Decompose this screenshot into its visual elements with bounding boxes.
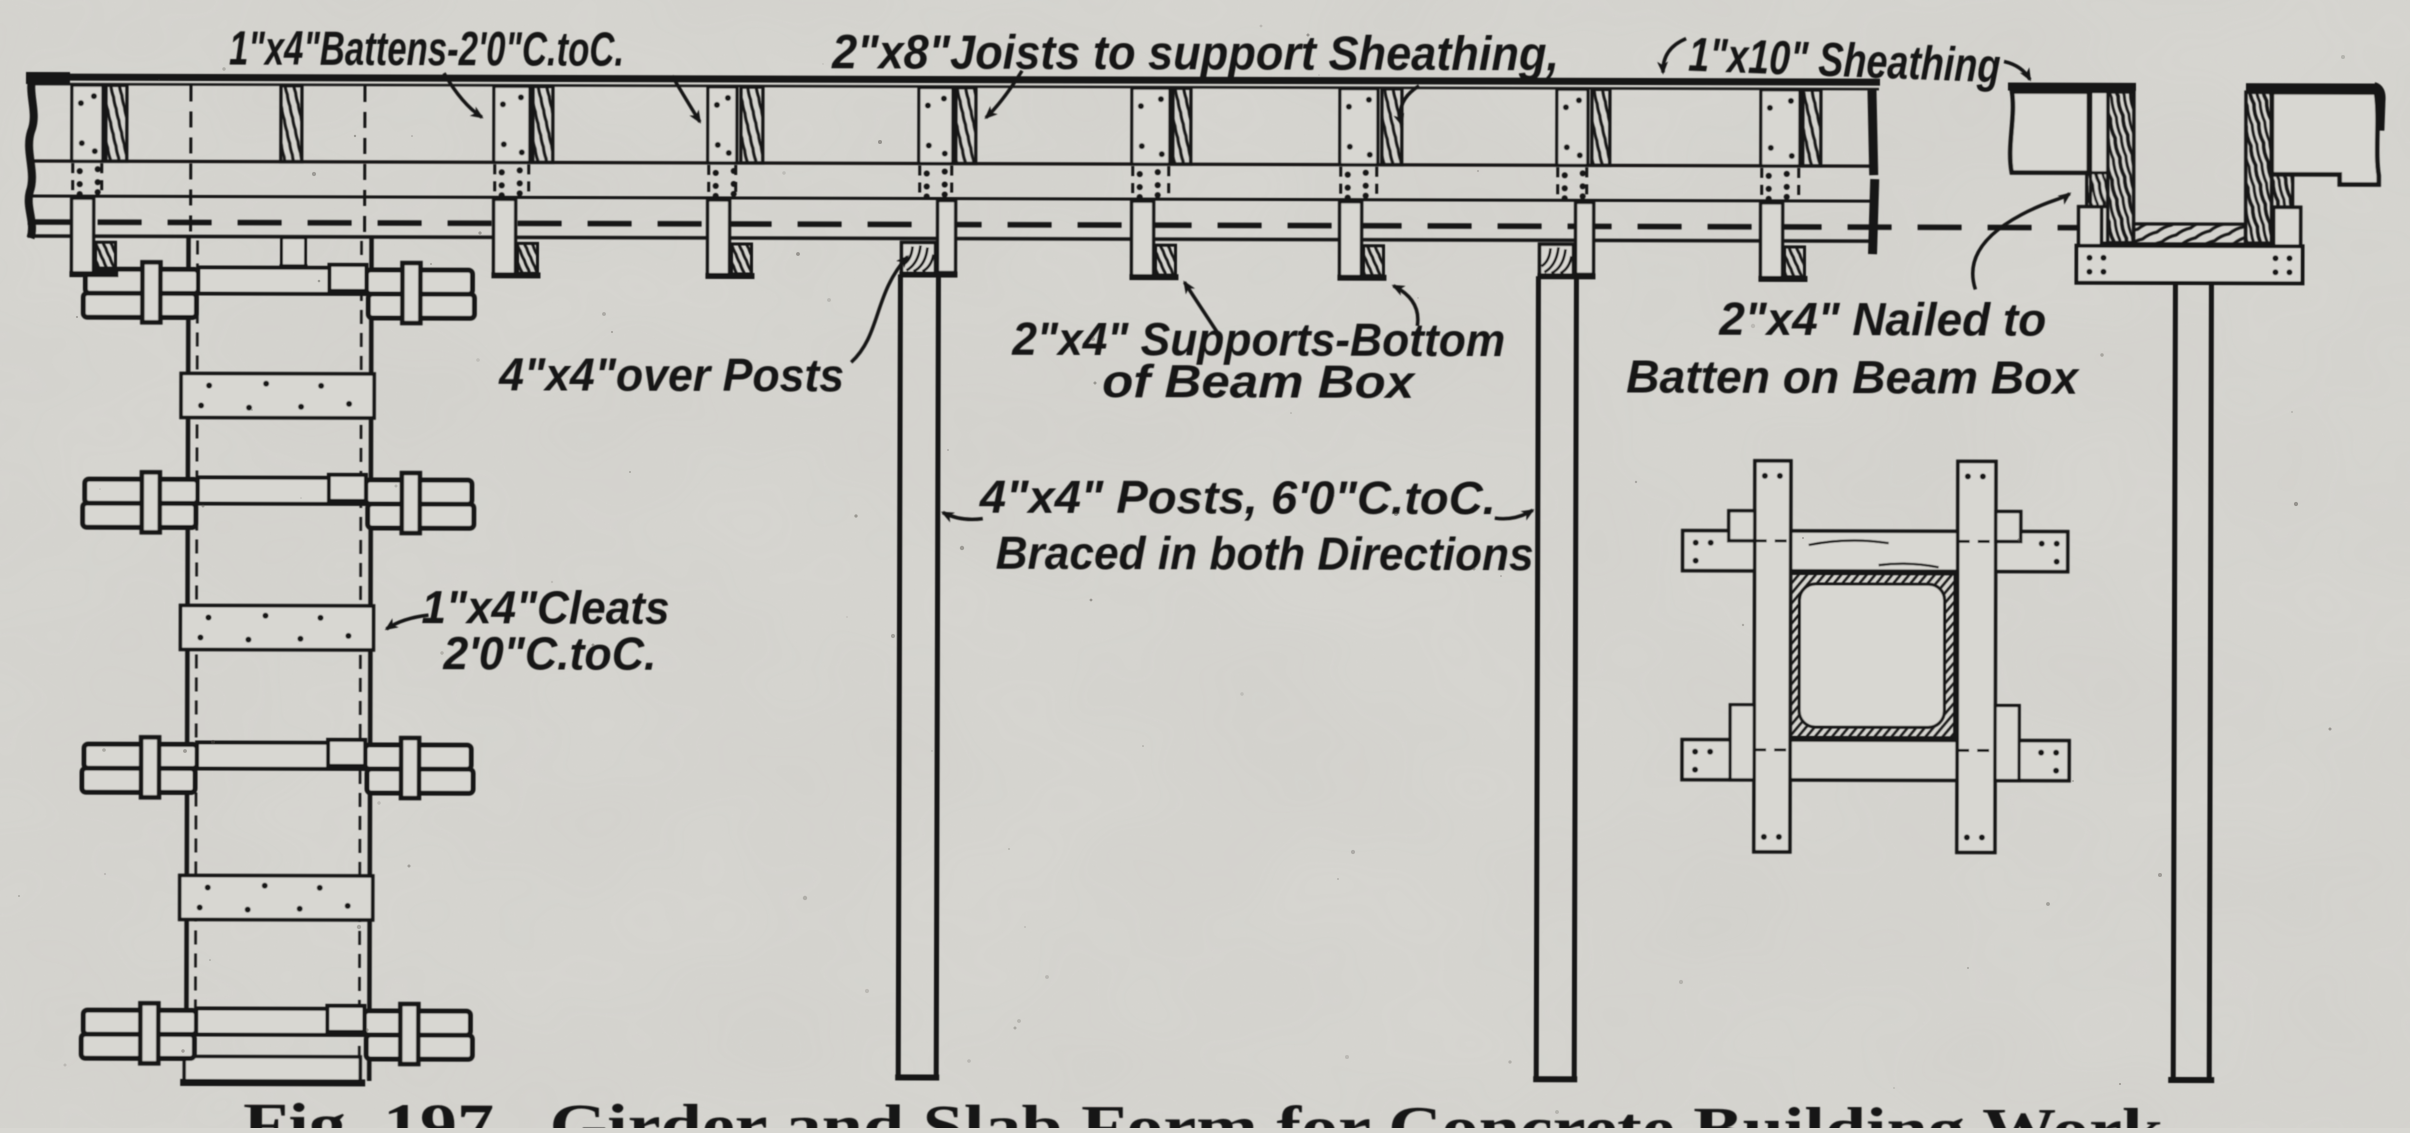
svg-text:Fig. 197. Girder and Slab For: Fig. 197. Girder and Slab Form for Concr…	[243, 1092, 2164, 1128]
svg-text:of Beam Box: of Beam Box	[1102, 355, 1417, 408]
svg-text:2"x8"Joists to support Sheathi: 2"x8"Joists to support Sheathing,	[831, 26, 1559, 81]
svg-text:Braced in both Directions: Braced in both Directions	[996, 527, 1534, 581]
svg-text:2'0"C.toC.: 2'0"C.toC.	[442, 627, 656, 680]
svg-text:Batten on Beam Box: Batten on Beam Box	[1626, 350, 2081, 403]
svg-text:1"x4"Cleats: 1"x4"Cleats	[421, 581, 669, 634]
svg-text:2"x4" Nailed to: 2"x4" Nailed to	[1718, 293, 2046, 346]
svg-text:4"x4" Posts, 6'0"C.toC.: 4"x4" Posts, 6'0"C.toC.	[979, 471, 1496, 524]
svg-text:4"x4"over Posts: 4"x4"over Posts	[498, 348, 844, 401]
svg-text:1"x4"Battens-2'0"C.toC.: 1"x4"Battens-2'0"C.toC.	[229, 23, 624, 77]
